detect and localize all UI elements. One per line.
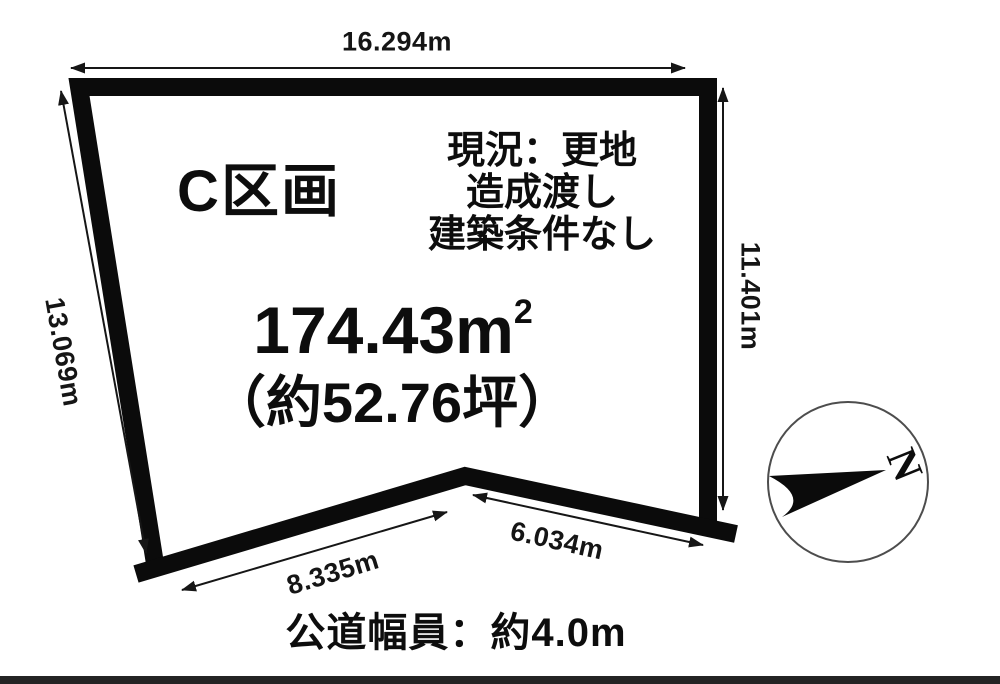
north-arrow-icon [769,470,886,517]
conditions-note: 現況：更地 造成渡し 建築条件なし [428,130,656,256]
dimension-line-left [61,91,146,553]
condition-line-1: 現況：更地 [428,130,656,172]
bottom-edge-strip [0,676,1000,684]
dimension-top-label: 16.294m [342,29,452,56]
area-value: 174.43m [253,293,514,367]
area-tsubo-text: （約52.76坪） [210,375,574,431]
condition-line-2: 造成渡し [428,172,656,214]
area-superscript: 2 [514,293,533,331]
dimension-right-label: 11.401m [737,242,764,351]
plot-label: C区画 [177,163,341,221]
land-plot-diagram: N 16.294m 11.401m 13.069m 8.335m 6.034m … [0,0,1000,684]
condition-line-3: 建築条件なし [428,214,656,256]
area-text: 174.43m2 [253,297,532,363]
plot-boundary-frontage [136,476,736,574]
road-width-note: 公道幅員：約4.0m [285,613,626,653]
compass-north-label: N [877,442,931,487]
